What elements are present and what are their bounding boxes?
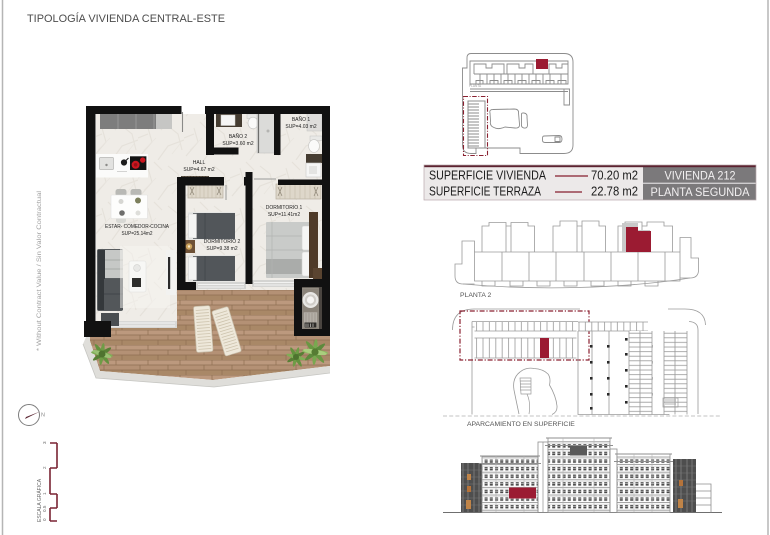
svg-text:SUPERFICIE TERRAZA: SUPERFICIE TERRAZA: [429, 184, 541, 199]
svg-text:VIVIENDA 212: VIVIENDA 212: [665, 169, 736, 183]
svg-text:DORMITORIO 1: DORMITORIO 1: [266, 205, 303, 211]
svg-text:SUP=4.67 m2: SUP=4.67 m2: [183, 167, 214, 173]
svg-text:ESTAR- COMEDOR-COCINA: ESTAR- COMEDOR-COCINA: [105, 224, 170, 230]
svg-text:N: N: [41, 413, 45, 419]
svg-text:2: 2: [42, 466, 47, 469]
svg-text:SUP=4.03 m2: SUP=4.03 m2: [285, 124, 316, 130]
svg-text:70.20 m2: 70.20 m2: [591, 168, 638, 183]
svg-text:SUP=9.38 m2: SUP=9.38 m2: [206, 246, 237, 252]
svg-text:TIPOLOGÍA VIVIENDA CENTRAL-EST: TIPOLOGÍA VIVIENDA CENTRAL-ESTE: [27, 12, 225, 25]
svg-text:3: 3: [42, 441, 47, 444]
svg-text:PLANTA SEGUNDA: PLANTA SEGUNDA: [651, 185, 750, 199]
svg-text:BAÑO 1: BAÑO 1: [292, 116, 311, 123]
svg-text:SUP=25.14m2: SUP=25.14m2: [122, 231, 153, 237]
svg-text:DORMITORIO 2: DORMITORIO 2: [204, 239, 241, 245]
svg-text:HALL: HALL: [193, 160, 206, 166]
svg-text:PLANTA: PLANTA: [469, 84, 482, 88]
svg-text:SUP=11.41m2: SUP=11.41m2: [268, 212, 301, 218]
svg-text:SUP=3.60 m2: SUP=3.60 m2: [222, 141, 253, 147]
svg-text:* Without Contract Value / Sin: * Without Contract Value / Sin Valor Con…: [36, 190, 43, 351]
svg-text:BAÑO 2: BAÑO 2: [229, 133, 248, 140]
svg-text:ESCALA GRÁFICA: ESCALA GRÁFICA: [36, 478, 43, 522]
svg-text:APARCAMIENTO EN SUPERFICIE: APARCAMIENTO EN SUPERFICIE: [467, 421, 575, 428]
svg-text:22.78 m2: 22.78 m2: [591, 184, 638, 199]
svg-text:PLANTA 2: PLANTA 2: [460, 292, 491, 299]
svg-text:SUPERFICIE VIVIENDA: SUPERFICIE VIVIENDA: [429, 168, 546, 183]
